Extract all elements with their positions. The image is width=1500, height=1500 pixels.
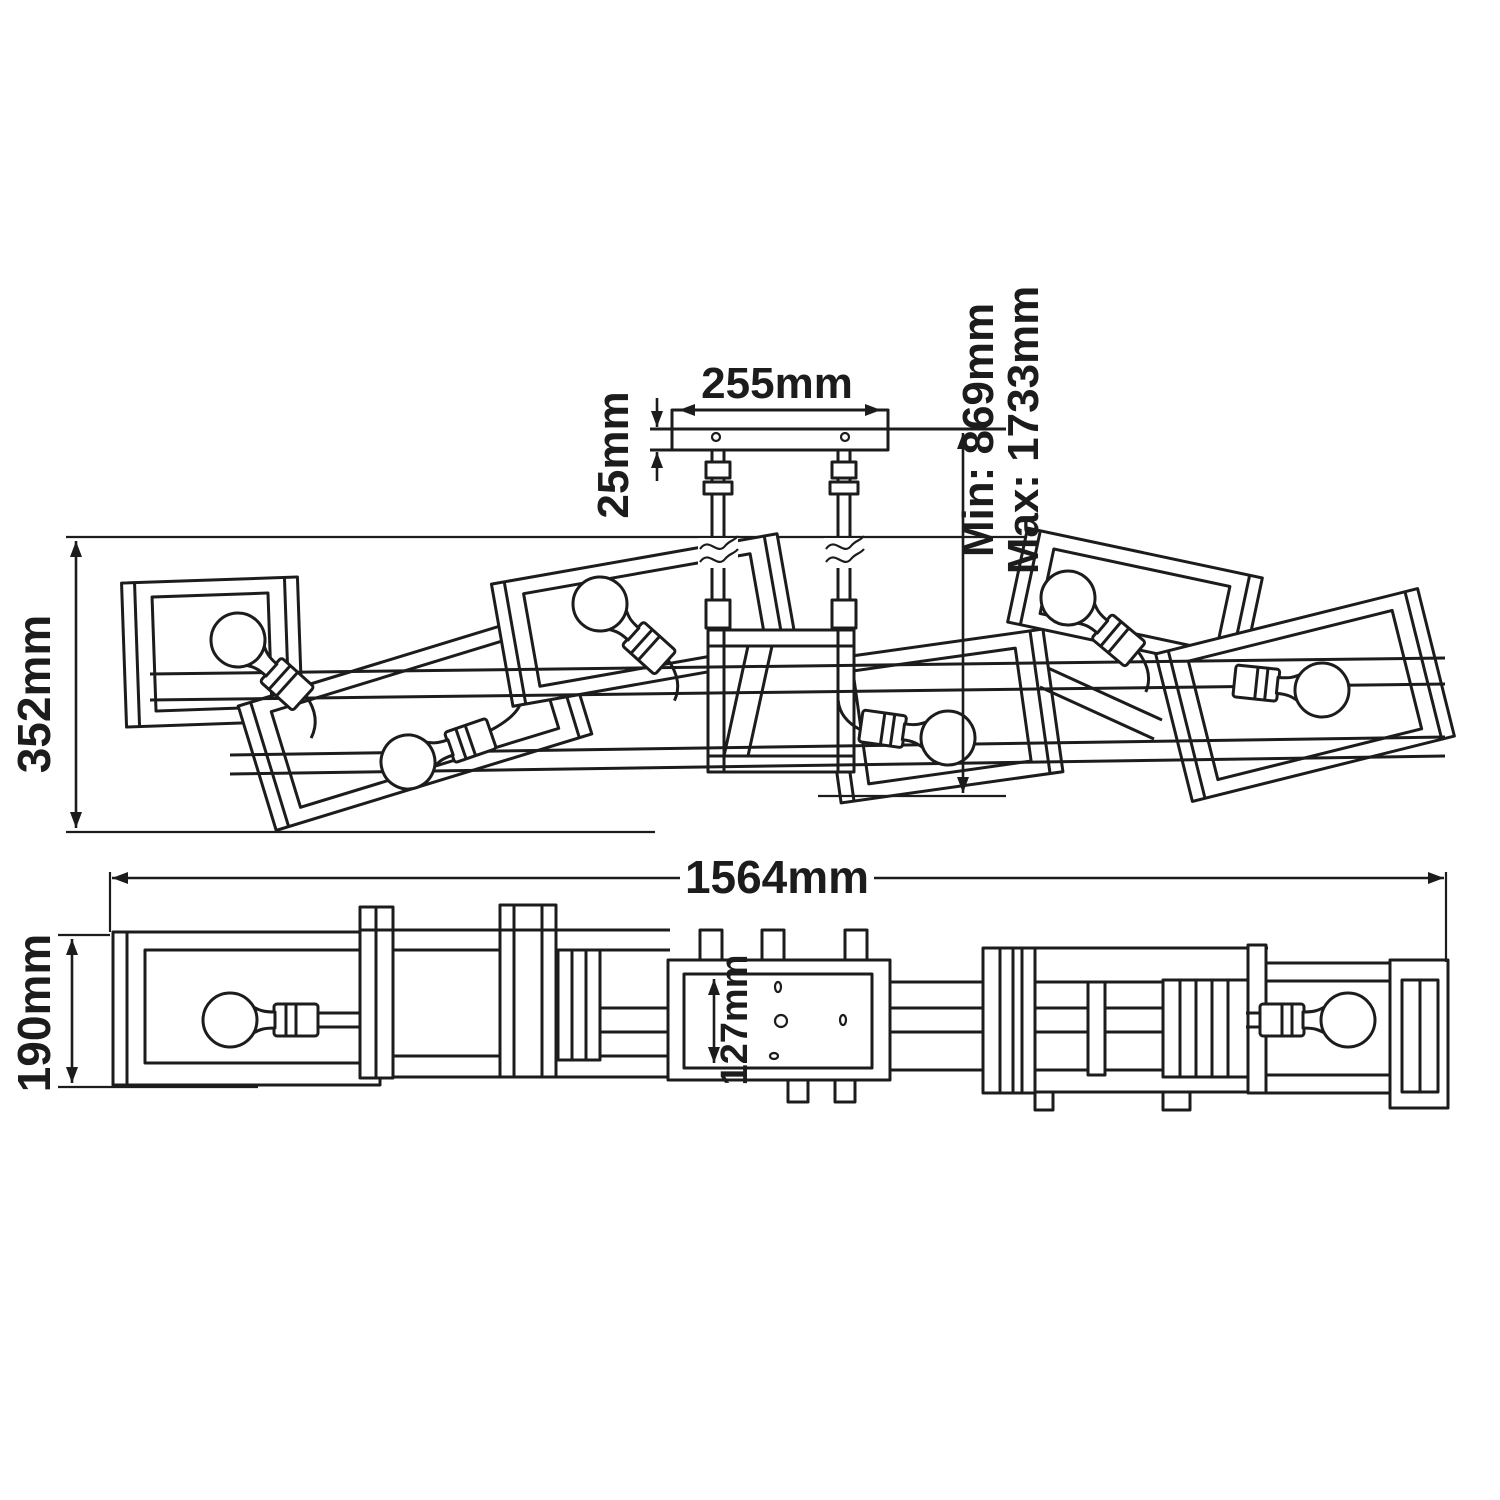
dim-canopy-width: 255mm (679, 359, 881, 410)
fixture-height-label: 190mm (8, 934, 60, 1093)
dim-fixture-depth: 352mm (8, 541, 76, 828)
central-box-plan (708, 630, 854, 772)
central-box-side: 127mm (668, 930, 890, 1102)
fixture-depth-label: 352mm (8, 615, 60, 774)
backplate-height-label: 127mm (714, 955, 756, 1086)
side-view: 127mm (8, 851, 1448, 1110)
canopy-depth-label: 25mm (589, 391, 638, 518)
side-end-box (1390, 960, 1448, 1108)
canopy-width-label: 255mm (701, 359, 853, 408)
fixture-length-label: 1564mm (685, 851, 869, 903)
drop-max-label: Max: 1733mm (999, 286, 1048, 575)
canopy (650, 410, 1006, 450)
plan-view: 255mm 25mm Min: 869mm Max: 1733mm 352mm (8, 286, 1454, 832)
side-posts-right (983, 945, 1266, 1110)
drop-min-label: Min: 869mm (954, 303, 1003, 557)
technical-drawing-canvas: 255mm 25mm Min: 869mm Max: 1733mm 352mm (0, 0, 1500, 1500)
fixture-dimension-diagram: 255mm 25mm Min: 869mm Max: 1733mm 352mm (0, 0, 1500, 1500)
dim-backplate-height: 127mm (714, 955, 756, 1086)
dim-canopy-depth: 25mm (589, 391, 657, 518)
